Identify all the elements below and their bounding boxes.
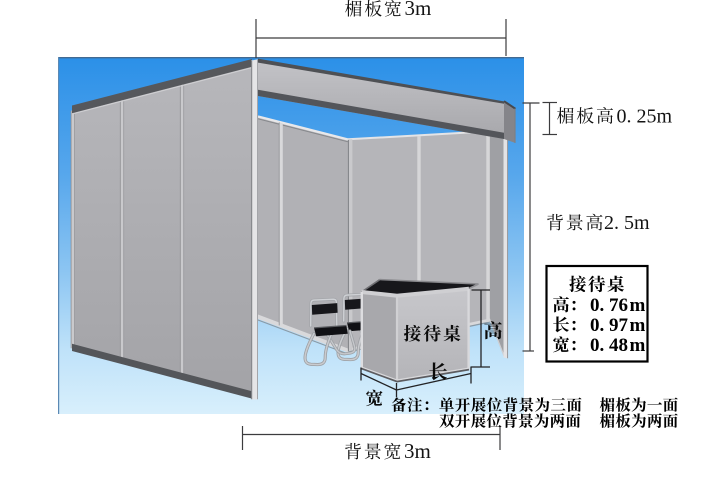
svg-text:0. 76: 0. 76 bbox=[590, 295, 628, 316]
svg-text:3m: 3m bbox=[404, 439, 431, 463]
svg-text:m: m bbox=[630, 335, 646, 356]
svg-text:0. 25m: 0. 25m bbox=[617, 105, 673, 127]
svg-text:m: m bbox=[630, 315, 646, 336]
svg-text:0. 97: 0. 97 bbox=[590, 315, 629, 336]
svg-text:0. 48: 0. 48 bbox=[590, 335, 628, 356]
svg-text:3m: 3m bbox=[405, 0, 432, 20]
svg-text:m: m bbox=[630, 295, 646, 316]
svg-text:2. 5m: 2. 5m bbox=[604, 212, 650, 234]
